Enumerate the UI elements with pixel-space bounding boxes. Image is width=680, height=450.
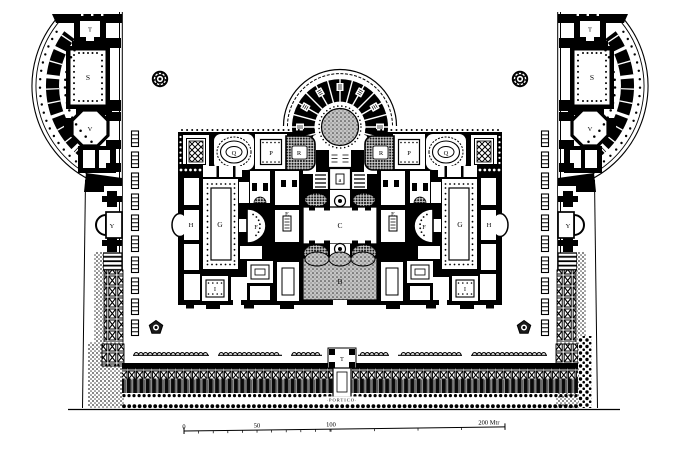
svg-text:I: I bbox=[464, 286, 466, 293]
svg-text:Q: Q bbox=[444, 150, 449, 157]
svg-text:F: F bbox=[422, 224, 426, 231]
svg-text:F: F bbox=[254, 224, 258, 231]
svg-text:Y: Y bbox=[110, 223, 115, 230]
svg-text:P: P bbox=[269, 150, 273, 157]
svg-text:I: I bbox=[214, 286, 216, 293]
svg-text:S: S bbox=[590, 73, 594, 82]
svg-text:G: G bbox=[217, 220, 223, 229]
svg-text:Y: Y bbox=[566, 223, 571, 230]
svg-text:H: H bbox=[189, 222, 194, 229]
svg-text:H: H bbox=[487, 222, 492, 229]
svg-text:a: a bbox=[339, 177, 342, 184]
svg-text:E: E bbox=[285, 211, 289, 218]
svg-text:·PORTICO·: ·PORTICO· bbox=[327, 398, 358, 403]
svg-text:200 Mtr: 200 Mtr bbox=[478, 419, 500, 426]
svg-text:G: G bbox=[457, 220, 463, 229]
svg-text:Q: Q bbox=[232, 150, 237, 157]
svg-text:T: T bbox=[88, 27, 92, 34]
svg-text:R: R bbox=[379, 150, 384, 157]
svg-text:S: S bbox=[86, 73, 90, 82]
svg-text:C: C bbox=[337, 221, 342, 230]
svg-text:T: T bbox=[340, 357, 344, 363]
svg-text:50: 50 bbox=[254, 423, 261, 430]
svg-text:100: 100 bbox=[326, 422, 336, 429]
svg-text:R: R bbox=[297, 150, 302, 157]
svg-text:V: V bbox=[588, 126, 593, 133]
svg-text:0: 0 bbox=[182, 424, 185, 431]
svg-text:T: T bbox=[588, 27, 592, 34]
svg-text:B: B bbox=[337, 277, 342, 286]
svg-text:P: P bbox=[407, 150, 411, 157]
svg-text:E: E bbox=[391, 211, 395, 218]
svg-text:V: V bbox=[88, 126, 93, 133]
